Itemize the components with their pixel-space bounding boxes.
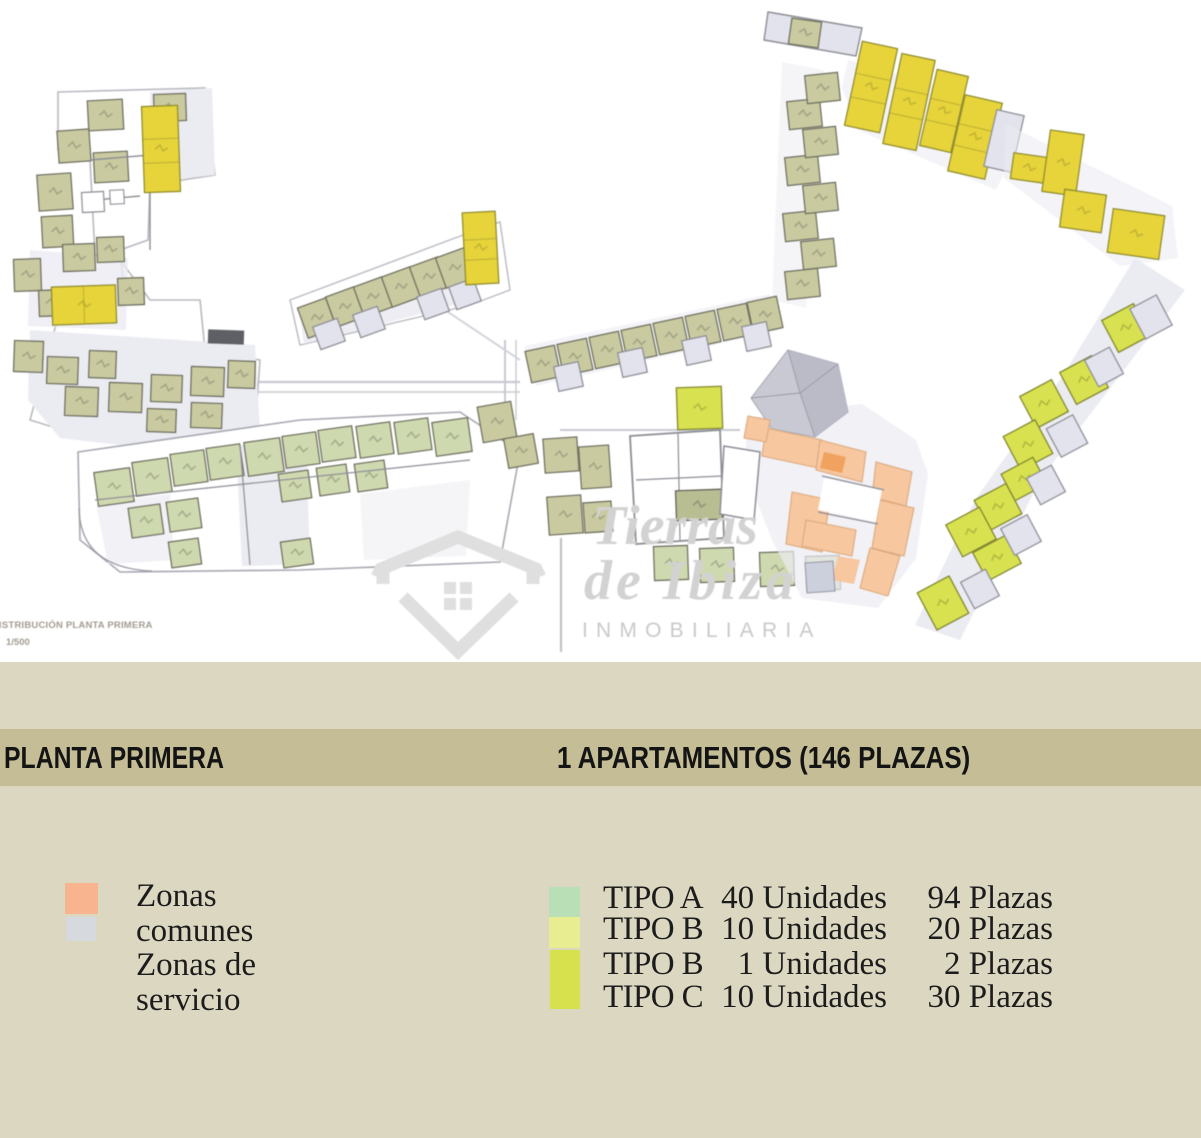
- svg-text:DISTRIBUCIÓN PLANTA PRIMERA: DISTRIBUCIÓN PLANTA PRIMERA: [0, 619, 153, 631]
- svg-text:1/500: 1/500: [6, 637, 30, 648]
- svg-text:INMOBILIARIA: INMOBILIARIA: [582, 619, 822, 642]
- svg-text:Tierras: Tierras: [592, 495, 758, 557]
- svg-text:de Ibiza: de Ibiza: [584, 550, 798, 612]
